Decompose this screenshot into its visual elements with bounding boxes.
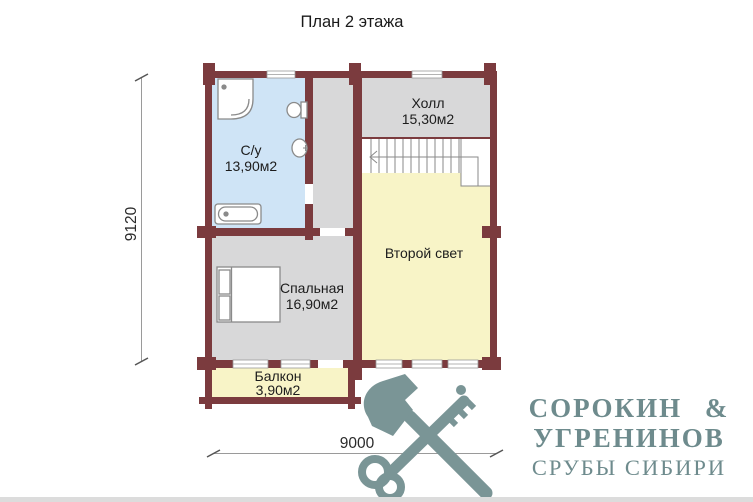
label-bedroom-name: Спальная — [280, 280, 344, 296]
label-balcony-area: 3,90м2 — [256, 382, 301, 398]
wall-segment — [268, 360, 281, 368]
label-hall-area: 15,30м2 — [402, 111, 455, 127]
wall-segment — [402, 360, 412, 368]
window — [233, 360, 268, 368]
logo-name-line2: УГРЕНИНОВ — [533, 423, 725, 453]
dimension-vertical-label: 9120 — [123, 206, 140, 241]
bottom-edge — [0, 497, 753, 502]
wall-segment — [310, 360, 318, 368]
log-joint — [482, 357, 501, 370]
shower-drain-icon — [222, 85, 226, 89]
stair-landing — [461, 139, 490, 186]
window — [412, 71, 442, 78]
door-opening — [318, 360, 343, 368]
wall-segment — [345, 228, 353, 236]
window — [412, 360, 442, 368]
label-bathroom-name: С/у — [241, 142, 262, 158]
log-joint — [205, 391, 212, 409]
wall-segment — [212, 228, 320, 236]
log-joint — [349, 63, 361, 85]
logo-tagline: СРУБЫ СИБИРИ — [532, 455, 726, 480]
dimension-horizontal-label: 9000 — [340, 435, 375, 452]
bathtub-drain-icon — [224, 212, 228, 216]
label-bathroom-area: 13,90м2 — [225, 158, 278, 174]
dimension-horizontal: 9000 — [207, 435, 503, 457]
floor-plan: С/у 13,90м2 Холл 15,30м2 Второй свет Спа… — [123, 63, 503, 457]
wall-segment — [353, 78, 362, 360]
axe-handle — [410, 417, 486, 493]
log-joint — [353, 352, 362, 380]
window — [281, 360, 310, 368]
floor-plan-canvas: План 2 этажа — [0, 0, 753, 502]
logo: СОРОКИН & УГРЕНИНОВ СРУБЫ СИБИРИ — [362, 374, 729, 498]
wall-segment — [442, 360, 448, 368]
room-void-floor — [362, 173, 490, 360]
key-tip — [456, 385, 466, 395]
log-joint — [484, 63, 496, 85]
log-joint — [348, 391, 355, 409]
key-bow-ring — [379, 476, 401, 498]
room-corridor-floor — [313, 78, 353, 228]
label-void-name: Второй свет — [385, 245, 464, 261]
wall-segment — [305, 78, 313, 184]
log-joint — [203, 63, 215, 85]
window — [267, 71, 295, 78]
bed-pillow — [219, 296, 230, 320]
logo-name-line1: СОРОКИН & — [529, 393, 730, 423]
log-joint — [305, 222, 313, 240]
door-opening — [305, 184, 313, 204]
log-joint — [353, 222, 362, 242]
log-joint — [197, 357, 216, 370]
window — [448, 360, 478, 368]
balcony-railing — [199, 397, 361, 404]
bed — [217, 267, 280, 322]
bed-pillow — [219, 270, 230, 294]
axe-head — [364, 374, 418, 436]
log-joint — [482, 226, 501, 238]
hall-stair-divider — [362, 137, 490, 139]
page-title: План 2 этажа — [301, 13, 405, 31]
window — [376, 360, 402, 368]
door-opening — [320, 228, 345, 236]
crossed-axe-and-key-icon — [362, 374, 486, 498]
wall-segment — [205, 78, 212, 368]
label-bedroom-area: 16,90м2 — [286, 296, 339, 312]
floor-plan-page: План 2 этажа — [0, 0, 753, 502]
log-joint — [197, 226, 216, 238]
logo-text: СОРОКИН & УГРЕНИНОВ СРУБЫ СИБИРИ — [529, 393, 730, 480]
toilet-tank — [301, 102, 307, 118]
toilet — [287, 103, 301, 118]
label-hall-name: Холл — [412, 95, 445, 111]
dimension-vertical: 9120 — [123, 74, 148, 365]
wall-segment — [490, 78, 497, 368]
